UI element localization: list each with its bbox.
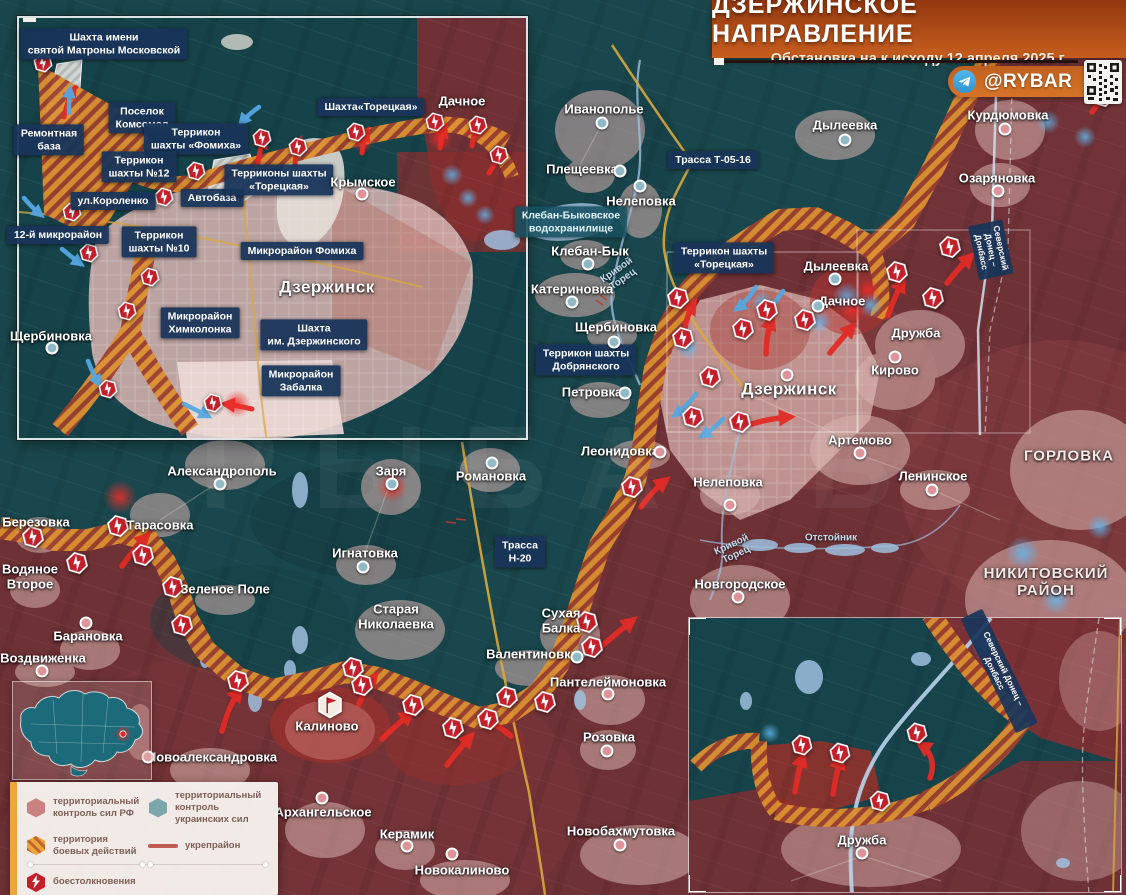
clash-icon	[129, 541, 157, 569]
infrastructure-plate: Трасса Т-05-16	[668, 151, 758, 169]
settlement-marker	[619, 387, 632, 400]
settlement-label: Новобахмутовка	[567, 825, 675, 840]
settlement-marker	[992, 185, 1005, 198]
clash-icon	[883, 258, 911, 286]
ua-activity-glow	[808, 310, 832, 334]
clash-icon	[791, 306, 819, 334]
legend-label: территория боевых действий	[53, 834, 136, 858]
settlement-label: Сухая Балка	[542, 606, 581, 635]
clash-icon	[679, 403, 707, 431]
clash-icon	[439, 714, 467, 742]
settlement-label: Нелеповка	[693, 476, 762, 491]
clash-icon	[753, 296, 781, 324]
settlement-label: Артемово	[828, 434, 892, 449]
legend-item: территориальный контроль украинских сил	[148, 790, 270, 826]
settlement-label: Новокалиново	[415, 864, 510, 879]
captured-flag-icon	[316, 691, 344, 719]
inset-tl-map	[19, 18, 528, 440]
clash-icon	[348, 671, 376, 699]
settlement-marker	[634, 180, 647, 193]
inset-corner-bracket	[1104, 617, 1122, 635]
settlement-marker	[486, 457, 499, 470]
rybar-badge[interactable]: @RYBAR	[948, 66, 1090, 97]
legend-label: боестолкновения	[53, 876, 136, 888]
telegram-icon	[953, 70, 976, 93]
settlement-label: Романовка	[456, 470, 526, 485]
ukraine-locator-map	[12, 681, 152, 780]
ua-activity-glow	[857, 292, 883, 318]
settlement-marker	[386, 478, 399, 491]
legend-item: боестолкновения	[26, 872, 270, 892]
settlement-label: Озаряновка	[959, 172, 1036, 187]
settlement-label: Дружба	[892, 327, 941, 342]
progress-handle	[714, 58, 724, 65]
clash-icon	[104, 512, 132, 540]
ua-activity-glow	[832, 282, 862, 312]
legend-swatch-hex-rf	[26, 798, 46, 818]
clash-icon	[696, 363, 724, 391]
settlement-marker	[829, 273, 842, 286]
settlement-label: Петровка	[562, 386, 622, 401]
settlement-label: Березовка	[2, 516, 70, 531]
water-label: Отстойник	[805, 532, 857, 543]
strike-glow	[376, 471, 408, 503]
infrastructure-plate: Террикон шахты «Торецкая»	[674, 242, 774, 273]
clash-icon	[339, 654, 367, 682]
ua-activity-glow	[1074, 126, 1096, 148]
settlement-marker	[724, 499, 737, 512]
clash-icon	[669, 324, 697, 352]
inset-corner-bracket	[688, 875, 706, 893]
settlement-label: Розовка	[583, 731, 635, 746]
settlement-label: Новоалександровка	[147, 751, 277, 766]
clash-icon	[618, 473, 646, 501]
canal-label: Северский Донец – Донбасс	[968, 219, 1013, 280]
legend-swatch-hex-clash	[26, 872, 46, 892]
settlement-label: Александрополь	[167, 465, 276, 480]
legend-item: укрепрайон	[148, 834, 270, 858]
ua-activity-glow	[751, 291, 773, 313]
settlement-label: Нелеповка	[606, 195, 675, 210]
legend-label: укрепрайон	[185, 840, 240, 852]
ua-activity-glow	[1041, 585, 1071, 615]
inset-map-dzerzhinsk-detail	[17, 16, 528, 440]
settlement-marker	[571, 651, 584, 664]
city-label: Дзержинск	[741, 379, 837, 398]
strike-glow	[837, 295, 867, 325]
settlement-label: Калиново	[295, 720, 358, 735]
settlement-label: Старая Николаевка	[358, 602, 434, 631]
settlement-label: Катериновка	[531, 283, 613, 298]
settlement-marker	[812, 300, 825, 313]
infrastructure-plate: Террикон шахты Добрянского	[536, 344, 636, 375]
clash-icon	[531, 688, 559, 716]
settlement-marker	[854, 447, 867, 460]
settlement-label: Иванополье	[564, 103, 643, 118]
settlement-label: Ленинское	[899, 470, 968, 485]
clash-icon	[493, 683, 521, 711]
clash-icon	[578, 633, 606, 661]
map-canvas: ИванопольеПлещеевкаНелеповкаКлебан-Быков…	[0, 0, 1126, 895]
settlement-label: Зеленое Поле	[180, 583, 270, 598]
strike-glow	[103, 480, 137, 514]
settlement-label: Новгородское	[694, 578, 785, 593]
map-legend: территориальный контроль сил РФтерритори…	[10, 782, 278, 895]
water-body-label: Клебан-Быковское водохранилище	[515, 206, 627, 237]
inset-corner-bracket	[1104, 875, 1122, 893]
inset-br-map	[689, 618, 1122, 893]
settlement-label: Архангельское	[274, 806, 371, 821]
settlement-label: Водяное Второе	[2, 562, 58, 591]
infrastructure-plate: Трасса Н-20	[495, 536, 545, 567]
settlement-label: Пантелеймоновка	[550, 676, 666, 691]
settlement-label: Клебан-Бык	[551, 245, 628, 260]
settlement-marker	[732, 591, 745, 604]
legend-separator	[28, 864, 268, 865]
map-subtitle: Обстановка на к исходу 12 апреля 2025 г.	[771, 51, 1067, 67]
settlement-marker	[999, 123, 1012, 136]
legend-label: территориальный контроль украинских сил	[175, 790, 270, 826]
legend-item: территория боевых действий	[26, 834, 144, 858]
ua-activity-glow	[1006, 536, 1040, 570]
settlement-marker	[446, 848, 459, 861]
settlement-marker	[582, 258, 595, 271]
settlement-label: Плещеевка	[546, 163, 618, 178]
legend-swatch-hex-ua	[148, 798, 168, 818]
settlement-label: Барановка	[53, 630, 122, 645]
clash-icon	[936, 233, 964, 261]
legend-swatch-line-fort	[148, 844, 178, 848]
clash-icon	[726, 408, 754, 436]
ua-activity-glow	[1087, 514, 1113, 540]
settlement-label: Курдюмовка	[968, 109, 1049, 124]
clash-icon	[919, 284, 947, 312]
title-progress-line	[714, 60, 1078, 63]
settlement-marker	[601, 745, 614, 758]
inset-map-druzhba-detail	[688, 617, 1122, 893]
settlement-marker	[654, 446, 667, 459]
settlement-marker	[889, 351, 902, 364]
clash-icon	[19, 523, 47, 551]
water-label: Кривой Торец	[599, 255, 642, 294]
clash-icon	[729, 315, 757, 343]
settlement-marker	[36, 665, 49, 678]
settlement-marker	[80, 617, 93, 630]
legend-item: территориальный контроль сил РФ	[26, 790, 144, 826]
settlement-label: Кирово	[871, 364, 919, 379]
settlement-marker	[926, 484, 939, 497]
ua-activity-glow	[676, 336, 700, 360]
clash-icon	[224, 667, 252, 695]
title-banner: ДЗЕРЖИНСКОЕ НАПРАВЛЕНИЕ Обстановка на к …	[712, 0, 1126, 58]
channel-handle: @RYBAR	[984, 71, 1072, 93]
settlement-label: Заря	[376, 465, 407, 480]
settlement-marker	[316, 792, 329, 805]
city-label: ГОРЛОВКА	[1024, 449, 1114, 466]
water-label: Кривой Торец	[713, 532, 756, 568]
settlement-marker	[614, 839, 627, 852]
settlement-label: Дылеевка	[813, 119, 878, 134]
settlement-marker	[357, 561, 370, 574]
settlement-marker	[781, 369, 794, 382]
settlement-label: Воздвиженка	[0, 652, 86, 667]
map-title: ДЗЕРЖИНСКОЕ НАПРАВЛЕНИЕ	[712, 0, 1126, 49]
settlement-marker	[401, 840, 414, 853]
inset-corner-bracket	[688, 617, 706, 635]
clash-icon	[399, 691, 427, 719]
legend-swatch-hex-combat	[26, 836, 46, 856]
legend-label: территориальный контроль сил РФ	[53, 796, 139, 820]
inset-slider-handle	[23, 16, 36, 22]
ua-activity-glow	[1036, 110, 1060, 134]
settlement-label: Щербиновка	[575, 321, 657, 336]
settlement-marker	[214, 478, 227, 491]
clash-icon	[573, 608, 601, 636]
settlement-label: Дачное	[819, 295, 866, 310]
settlement-marker	[566, 296, 579, 309]
clash-icon	[159, 573, 187, 601]
clash-icon	[63, 549, 91, 577]
settlement-label: Игнатовка	[332, 547, 398, 562]
strike-glow	[856, 278, 880, 302]
settlement-label: Валентиновка	[486, 648, 578, 663]
clash-icon	[474, 705, 502, 733]
clash-icon	[664, 284, 692, 312]
legend-accent-bar	[10, 782, 17, 895]
settlement-marker	[614, 165, 627, 178]
settlement-marker	[602, 688, 615, 701]
settlement-label: Тарасовка	[127, 519, 194, 534]
settlement-label: Леонидовка	[581, 445, 659, 460]
settlement-marker	[596, 117, 609, 130]
settlement-marker	[608, 336, 621, 349]
qr-code	[1084, 60, 1122, 104]
clash-icon	[168, 611, 196, 639]
settlement-marker	[839, 134, 852, 147]
city-label: НИКИТОВСКИЙ РАЙОН	[984, 566, 1109, 600]
settlement-label: Керамик	[380, 828, 434, 843]
settlement-label: Дылеевка	[804, 260, 869, 275]
